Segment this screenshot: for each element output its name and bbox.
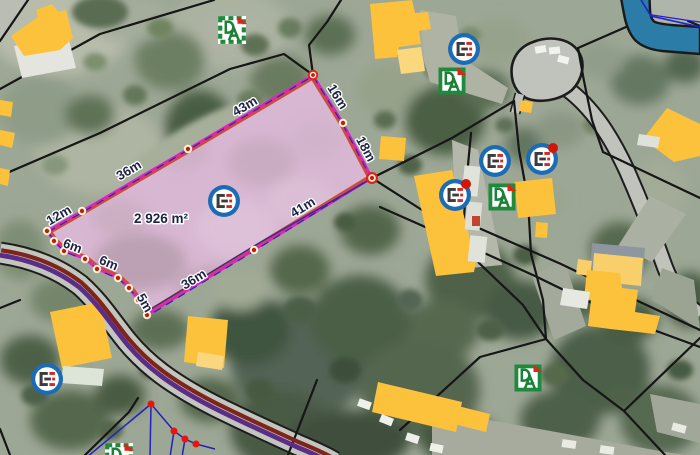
svg-text:2 926 m²: 2 926 m² — [134, 211, 189, 226]
